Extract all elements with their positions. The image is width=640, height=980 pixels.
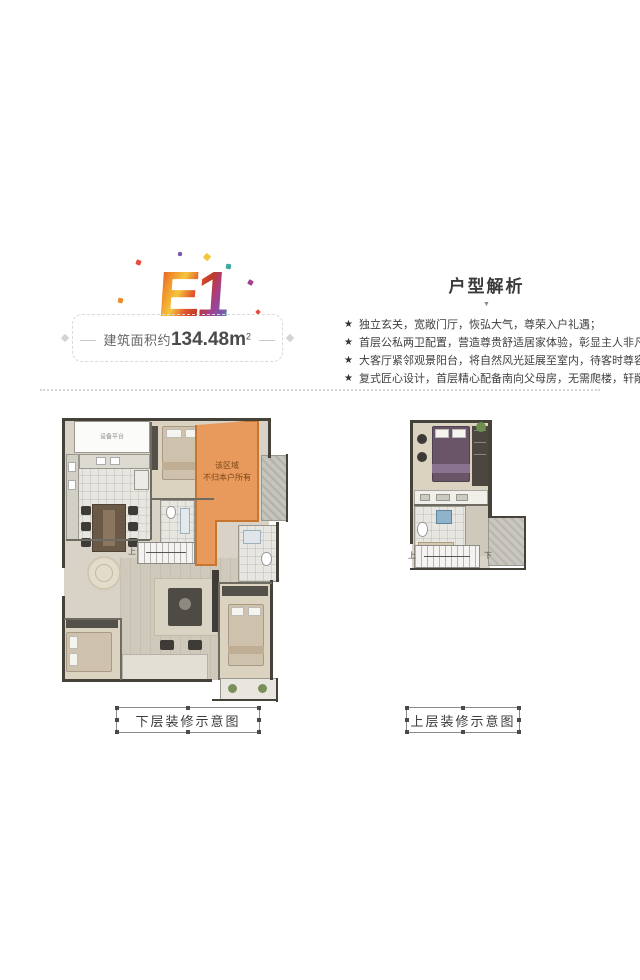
wall [488,516,526,518]
not-owned-region: 该区域 不归本户所有 [195,420,259,522]
interior-wall [152,498,214,500]
chair-icon [417,452,427,462]
shelf-box [456,494,468,501]
lower-caption-text: 下层装修示意图 [135,711,240,730]
round-rug-inner [95,564,113,582]
area-value: 134.48 [171,329,229,350]
diamond-marker-left [61,334,69,342]
pillow [231,607,244,616]
pillow [435,429,449,438]
wall [270,580,273,680]
wall [524,516,526,568]
pillow [69,636,78,649]
interior-wall [66,539,150,541]
interior-wall [64,618,120,620]
caret-down-icon: ▼ [344,301,629,308]
hanger-line [474,442,486,443]
area-unit-sup: 2 [246,332,252,342]
armchair-icon [188,640,202,650]
pillow [452,429,466,438]
plant-icon [258,684,267,693]
star-icon: ★ [344,316,353,334]
not-owned-region-leg [195,520,217,566]
equipment-platform-label: 设备平台 [100,434,124,440]
confetti-dot [247,279,254,286]
sink-icon [68,480,76,490]
sink-icon [96,457,106,465]
wall [276,522,279,582]
analysis-bullet: ★大客厅紧邻观景阳台，将自然风光延展至室内，待客时尊容大气； [344,352,629,370]
interior-wall [218,582,220,680]
analysis-title: 户型解析 [344,272,629,297]
armchair-icon [160,640,174,650]
area-unit: m [229,329,246,350]
washer-icon [436,510,452,524]
wall [62,418,271,421]
floorplan-page: E1 建筑面积约134.48m2 户型解析 ▼ ★独立玄关，宽敞门厅，恢弘大气，… [0,0,640,980]
chair-icon [128,506,138,515]
interior-wall [120,618,122,680]
bullet-text: 独立玄关，宽敞门厅，恢弘大气，尊荣入户礼遇； [359,316,601,334]
wall [62,418,65,568]
bullet-text: 首层公私两卫配置，营造尊贵舒适居家体验，彰显主人非凡气宇； [359,334,640,352]
upper-caption-text: 上层装修示意图 [410,711,515,730]
upper-plan-caption: 上层装修示意图 [406,707,520,733]
plant-icon [476,422,486,432]
shelf-box [436,494,450,501]
dotted-divider [40,389,600,391]
wall [62,679,212,682]
confetti-dot [135,259,141,265]
lower-floor-plan: 设备平台 该区域 不归本户所有 [62,418,292,702]
shower-icon [180,508,190,534]
analysis-bullet: ★首层公私两卫配置，营造尊贵舒适居家体验，彰显主人非凡气宇； [344,334,629,352]
diamond-marker-right [286,334,294,342]
stairs-up-label: 上 [408,552,416,560]
shower-icon [243,530,261,544]
fridge-icon [134,470,149,490]
confetti-dot [178,252,183,257]
analysis-section: 户型解析 ▼ ★独立玄关，宽敞门厅，恢弘大气，尊荣入户礼遇； ★首层公私两卫配置… [344,272,629,388]
sink-icon [110,457,120,465]
divider-dash [80,340,96,341]
chair-icon [81,506,91,515]
bullet-text: 复式匠心设计，首层精心配备南向父母房，无需爬楼，轩敞朗阔。 [359,370,640,388]
chair-icon [417,434,427,444]
not-owned-label-line1: 该区域 [197,460,257,471]
stairs [137,542,195,564]
analysis-bullet-list: ★独立玄关，宽敞门厅，恢弘大气，尊荣入户礼遇； ★首层公私两卫配置，营造尊贵舒适… [344,316,629,388]
wall [212,699,278,701]
shelf-box [420,494,430,501]
toilet-icon [417,522,428,537]
interior-wall [150,422,152,540]
area-line: 建筑面积约134.48m2 [73,329,282,351]
terrace [488,516,526,566]
star-icon: ★ [344,352,353,370]
utility-platform [261,455,288,521]
analysis-bullet: ★独立玄关，宽敞门厅，恢弘大气，尊荣入户礼遇； [344,316,629,334]
area-prefix: 建筑面积约 [103,333,171,348]
upper-floor-plan: 上 下 [408,420,528,576]
interior-wall [218,582,272,584]
divider-dash [259,340,275,341]
chair-icon [81,522,91,531]
not-owned-label-line2: 不归本户所有 [197,472,257,483]
area-box: 建筑面积约134.48m2 [72,314,283,362]
toilet-icon [261,552,272,566]
bullet-text: 大客厅紧邻观景阳台，将自然风光延展至室内，待客时尊容大气； [359,352,640,370]
wardrobe [66,620,118,628]
hanger-line [474,454,486,455]
bed-throw [432,464,470,473]
pillow [166,429,182,438]
wall [286,454,288,522]
stairs-direction-line [146,552,186,553]
bed-throw [228,646,264,654]
star-icon: ★ [344,370,353,388]
stove-icon [68,462,76,472]
equipment-platform: 设备平台 [74,421,150,453]
stairs-down-label: 下 [484,552,492,560]
wardrobe [222,586,268,596]
confetti-dot [117,297,123,303]
star-icon: ★ [344,334,353,352]
wardrobe [472,426,488,486]
pillow [69,653,78,666]
balcony-door-mat [122,654,208,680]
building-area-text: 建筑面积约134.48m2 [103,329,251,351]
toilet-icon [166,506,176,519]
wardrobe [152,426,158,470]
wall [410,568,526,570]
table-decor [179,598,191,610]
wall [268,418,271,458]
plant-icon [228,684,237,693]
wall [62,596,65,682]
analysis-bullet: ★复式匠心设计，首层精心配备南向父母房，无需爬楼，轩敞朗阔。 [344,370,629,388]
stairs-direction-line [424,556,470,557]
pillow [248,607,261,616]
chair-icon [128,522,138,531]
lower-plan-caption: 下层装修示意图 [116,707,260,733]
interior-wall [414,504,488,506]
wall [410,420,413,544]
stairs-up-label: 上 [128,548,136,556]
wall [488,420,492,518]
